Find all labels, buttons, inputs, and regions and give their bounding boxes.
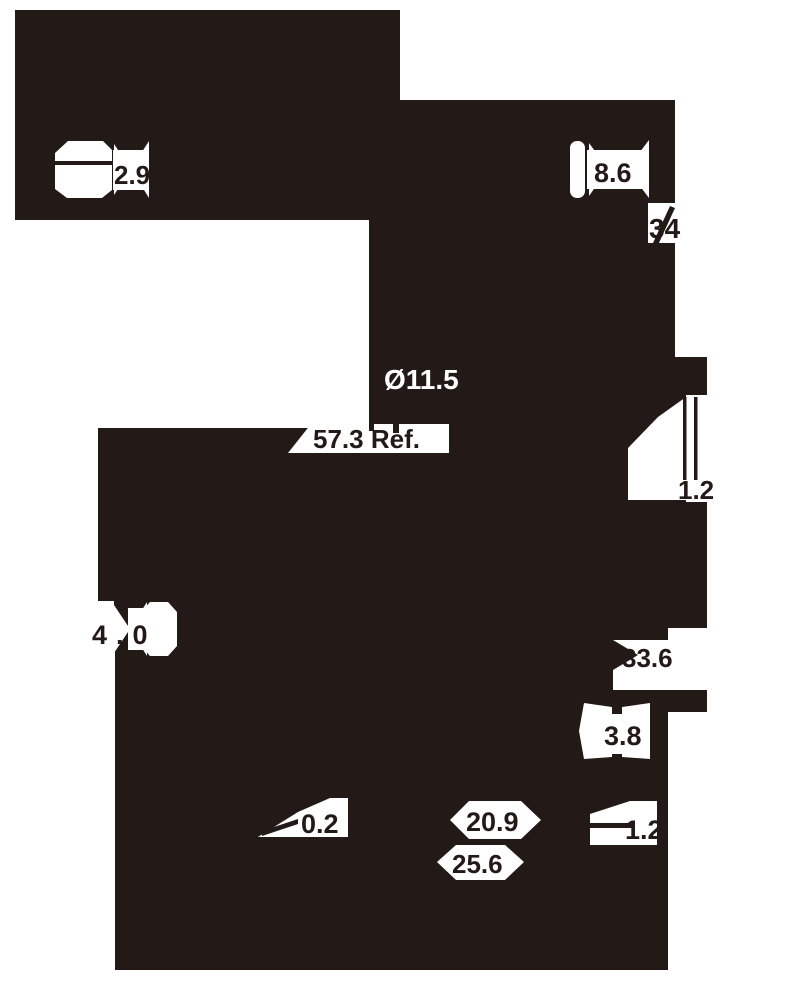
- dim-1-2-bottom-label: 1.2: [625, 815, 663, 845]
- dim-4-0-label: 4.0: [92, 620, 157, 650]
- dim-1-2-right-extension-line-1: [683, 397, 687, 480]
- dim-57-3-ref-callout: 57.3 Ref.: [288, 424, 449, 454]
- dim-8-6-extension-pill: [570, 141, 585, 198]
- dim-2-9-divider-line: [55, 161, 112, 165]
- dim-33-6-label: 33.6: [622, 643, 673, 673]
- dim-25-6-label: 25.6: [452, 849, 503, 879]
- dim-2-9-octagon: [55, 141, 112, 198]
- dim-33-6-callout: 33.6: [613, 640, 800, 690]
- dim-8-6-label: 8.6: [594, 158, 632, 188]
- dimension-drawing: 2.9 8.6 34 Ø11.5 57.3 Ref. 1.2 4.0: [0, 0, 800, 983]
- dim-57-3-ref-label: 57.3 Ref.: [313, 424, 420, 454]
- dim-20-9-label: 20.9: [466, 807, 519, 837]
- dim-1-2-right-label: 1.2: [678, 475, 714, 505]
- dim-3-8-label: 3.8: [604, 721, 642, 751]
- drawing-canvas: 2.9 8.6 34 Ø11.5 57.3 Ref. 1.2 4.0: [0, 0, 800, 983]
- dim-1-2-right-extension-line-2: [694, 397, 698, 480]
- dim-4-0-callout: 4.0: [88, 601, 177, 656]
- dim-2-9-label: 2.9: [114, 160, 150, 190]
- dim-0-2-label: 0.2: [301, 809, 339, 839]
- dim-dia-11-5-label: Ø11.5: [384, 364, 459, 395]
